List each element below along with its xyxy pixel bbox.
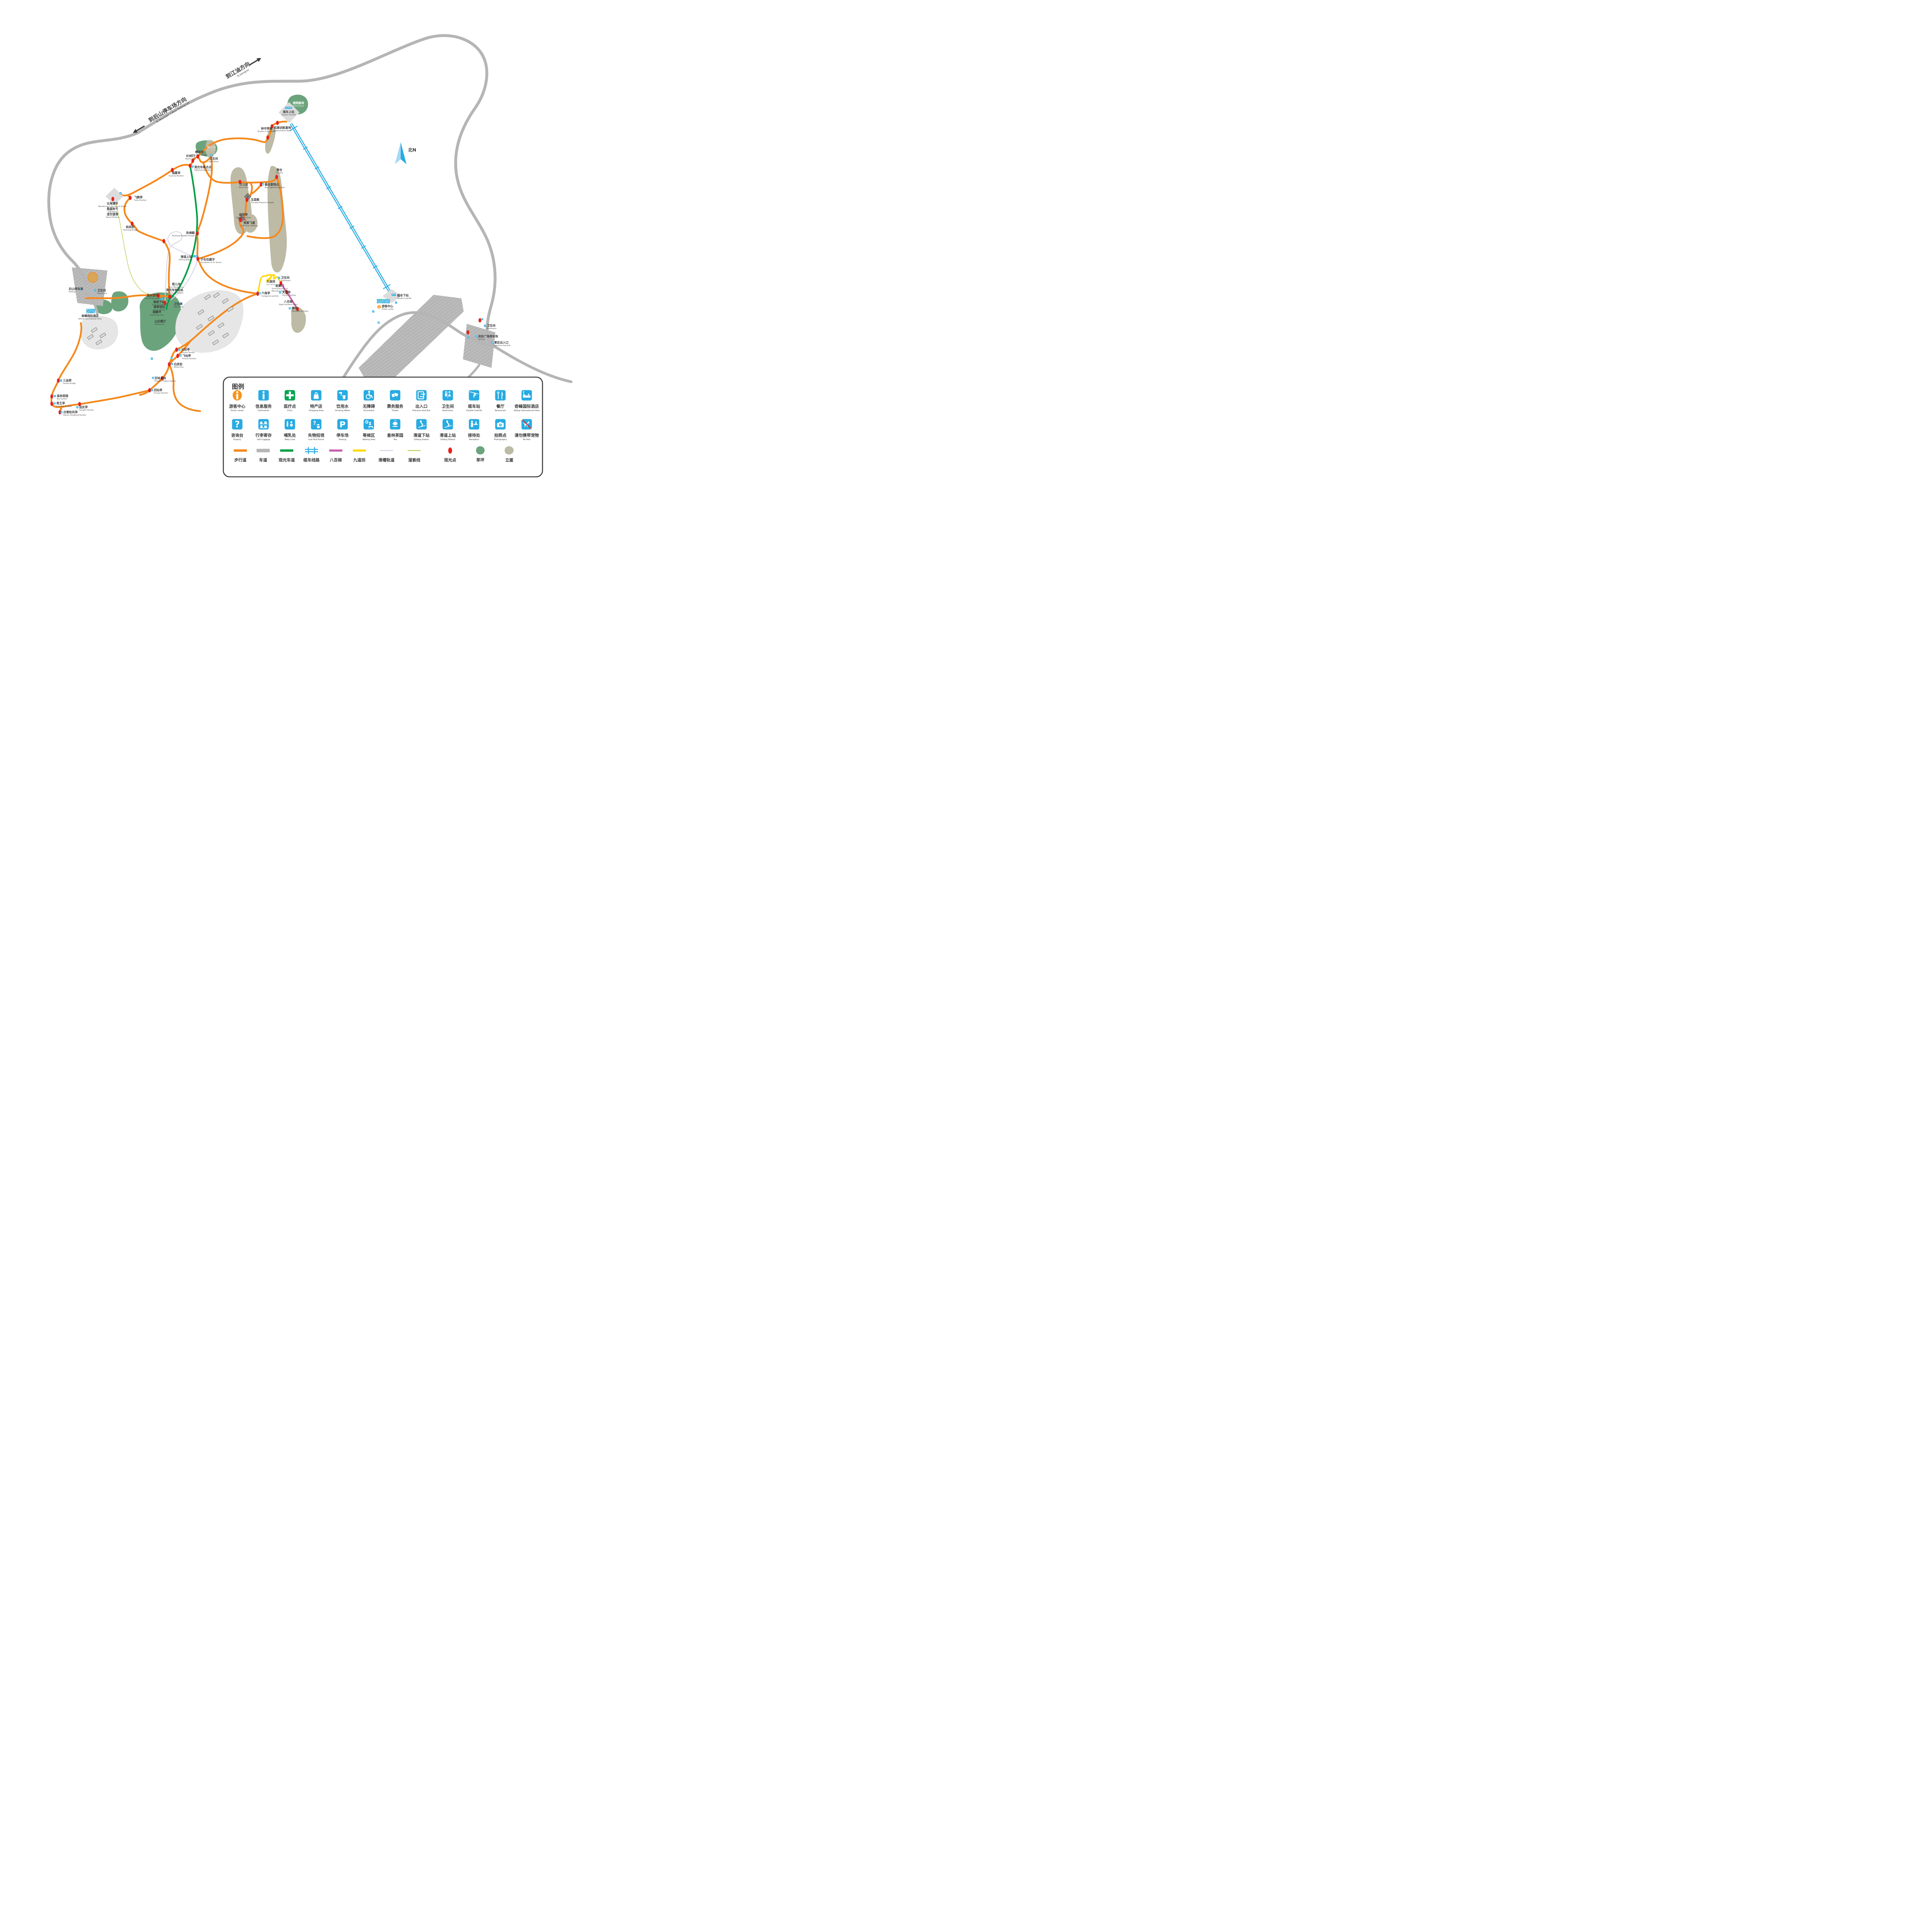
white-pine: 白皮松White Pine bbox=[174, 362, 184, 369]
parking-icon: P bbox=[86, 309, 88, 311]
back-mountain-parking-en: Parking bbox=[69, 291, 75, 293]
camera-icon bbox=[262, 183, 264, 185]
scenic-entrance-en: Entrance And Exit bbox=[494, 345, 510, 347]
back-mountain-parking-zh: 后山停车场 bbox=[69, 287, 83, 291]
scenic-spot-dot bbox=[50, 401, 53, 406]
north-label: 北N bbox=[408, 147, 416, 153]
tianyin-pavilion-en: Tianyin Pavilion bbox=[282, 294, 296, 297]
legend-en: Reception bbox=[469, 439, 479, 441]
gliding-station-upper-en: Gliding Station bbox=[179, 259, 192, 261]
walk-hotel-sanpin bbox=[58, 323, 81, 381]
speed-skating-en: Speed Skating bbox=[106, 216, 119, 219]
scenic-spot-dot bbox=[266, 135, 269, 139]
scenic-spot-dot bbox=[478, 318, 481, 322]
outward-bound-base-zh: 拓展训练基地 bbox=[274, 126, 291, 129]
guanwu-pavilion: 观雾亭Guanwu Pavilion bbox=[169, 171, 184, 177]
restaurant-icon bbox=[88, 311, 91, 313]
svg-text:?: ? bbox=[235, 420, 240, 430]
gliding-icon bbox=[416, 419, 427, 430]
forest-adventure: 森林探险Forest Adventure bbox=[145, 294, 160, 300]
restrooms-back-parking-zh: 卫生间 bbox=[97, 289, 106, 292]
to-back-parking-zh: 到后山停车场方向 bbox=[147, 96, 188, 124]
inscription-yu-youren-zh: 于右任题字 bbox=[201, 258, 215, 261]
junwang-pavilion: 君王亭Junwang Pavilion bbox=[56, 401, 72, 408]
scenic-spot-dot bbox=[57, 378, 60, 383]
junwang-pavilion-zh: 君王亭 bbox=[56, 401, 65, 405]
feihe-pavilion-en: Feihe Pavilion bbox=[134, 199, 146, 202]
yunyan-temple-en: Yunyan Temple bbox=[181, 352, 195, 354]
restrooms-temple: 卫生间Restrooms bbox=[174, 302, 184, 308]
white-pine-en: White Pine bbox=[174, 366, 184, 369]
enquiry-icon: ? bbox=[377, 301, 379, 304]
restrooms-nineturn: 卫生间Restrooms bbox=[281, 276, 291, 282]
sightseeing-start-station: 观光车始发站Sightseeing Station bbox=[166, 288, 184, 294]
guanwu-pavilion-en: Guanwu Pavilion bbox=[169, 175, 184, 177]
restrooms-icon bbox=[278, 277, 280, 279]
legend-line-label: 立崖 bbox=[505, 457, 514, 463]
songshi-pavilion-en: Songshi Pavilion bbox=[79, 409, 94, 412]
forest-adventure-en: Forest Adventure bbox=[145, 298, 160, 300]
legend-zh: 特产店 bbox=[310, 404, 323, 409]
map-canvas: PP??PP缆车上站Double Chairlift滑翔基地Gliding Ba… bbox=[0, 0, 606, 487]
heshang-bridge-en: Heshang Bridge bbox=[123, 229, 138, 231]
temple-complex bbox=[175, 291, 243, 352]
legend-en: Information bbox=[258, 410, 269, 412]
legend-zh: 拍照点 bbox=[494, 433, 507, 438]
chairlift-bottom-label: 缆车下站Double Chairlift bbox=[397, 294, 412, 300]
legend-en: Photography bbox=[494, 439, 507, 441]
daer-rock: 打儿岩Da'er Rock bbox=[239, 183, 249, 189]
shanlin-kou: 杉林口Shanlin Kou bbox=[185, 154, 196, 160]
best-sightseeing-spot-zh: 最佳景观点 bbox=[265, 183, 279, 186]
legend-zh: 票务服务 bbox=[387, 404, 403, 409]
gliding-icon bbox=[193, 255, 195, 257]
tianyin-pavilion-zh: 天音亭 bbox=[282, 291, 291, 294]
pavilion-icon bbox=[171, 363, 173, 365]
walk-yuyouren-hexagon bbox=[198, 259, 258, 294]
junwang-pavilion-en: Junwang Pavilion bbox=[56, 405, 72, 408]
info-icon bbox=[377, 299, 379, 301]
sanpin-bridge: 三品桥Sanpin Bridge bbox=[63, 379, 76, 385]
tickets-icon bbox=[119, 192, 122, 194]
scenic-spot-dot bbox=[245, 197, 248, 202]
nine-turning-en: Nine Turning bbox=[267, 284, 276, 286]
longzhu-parking-zh: 龙柱广场停车场 bbox=[478, 335, 498, 338]
rock-climbing-en: Rock Climbing bbox=[205, 150, 218, 152]
legend-en: Enquiry bbox=[233, 439, 241, 441]
svg-text:P: P bbox=[386, 301, 387, 303]
restrooms-right-zh: 卫生间 bbox=[487, 324, 495, 327]
nine-turning-zh: 九道拐 bbox=[266, 280, 276, 283]
visitor-icon bbox=[378, 305, 381, 309]
legend-en: Drinking Water bbox=[335, 410, 350, 412]
hotel-icon bbox=[86, 311, 88, 313]
legend-zh: 接待处 bbox=[468, 433, 480, 438]
scenic-spot-dot bbox=[176, 354, 179, 358]
tickets-icon bbox=[390, 390, 400, 401]
shopping-icon bbox=[311, 390, 321, 401]
huixian-pavilion-en: Huixian Pavilion bbox=[154, 392, 168, 395]
scenic-spot-dot bbox=[275, 175, 278, 179]
clinic-icon bbox=[285, 390, 295, 401]
restrooms-spring: 卫生间Restrooms bbox=[209, 157, 219, 163]
tickets-icon bbox=[388, 299, 390, 301]
legend-zh: 饮用水 bbox=[336, 404, 349, 409]
scenic-spot-dot bbox=[189, 163, 191, 168]
tianyin-pavilion: 天音亭Tianyin Pavilion bbox=[282, 291, 296, 297]
nopets-icon bbox=[522, 419, 532, 430]
legend-en: Qifeng International Hotel bbox=[514, 410, 539, 412]
legend-zh: 游客中心 bbox=[229, 404, 245, 409]
parking-icon: P bbox=[337, 419, 348, 430]
restrooms-icon bbox=[442, 390, 453, 401]
guanfeng-lawn-label-en: Guanfeng Lawn bbox=[150, 314, 164, 316]
gliding-station-upper: 滑道上站Gliding Station bbox=[179, 255, 192, 261]
guanfeng-lawn-label-zh: 观峰坪 bbox=[153, 310, 162, 314]
sightseeing-start-station-zh: 观光车始发站 bbox=[166, 288, 184, 292]
svg-text:P: P bbox=[339, 420, 345, 430]
front-entrance-fortress-zh: 前寨门 bbox=[276, 284, 284, 287]
villa-restaurant-en: Restaurant bbox=[155, 323, 165, 326]
camera-icon bbox=[170, 357, 173, 359]
inscription-yu-youren: 于右任题字Inscription of Yu Youren bbox=[201, 258, 222, 264]
svg-text:P: P bbox=[475, 335, 477, 338]
pavilion-icon bbox=[259, 292, 261, 294]
chairlift-icon bbox=[469, 390, 479, 401]
sightseeing-meeting-station-en: Sightseeing Station bbox=[194, 169, 212, 172]
legend-line-label: 车道 bbox=[259, 457, 267, 463]
scenic-spot-dot bbox=[162, 239, 165, 243]
scenic-entrance: 景区出入口Entrance And Exit bbox=[494, 341, 510, 347]
info-icon bbox=[259, 390, 269, 401]
white-pine-zh: 白皮松 bbox=[174, 362, 183, 366]
water-icon bbox=[337, 390, 348, 401]
legend-en: Tickets bbox=[391, 410, 399, 412]
scenic-spot-dot bbox=[148, 388, 151, 392]
svg-text:?: ? bbox=[313, 420, 316, 426]
walk-guanwu-station bbox=[172, 165, 190, 170]
inscription-yu-youren-en: Inscription of Yu Youren bbox=[201, 262, 222, 264]
songshi-pavilion-zh: 送史亭 bbox=[79, 405, 88, 409]
nine-turning: 九道拐Nine Turning bbox=[266, 280, 276, 286]
cliff-chain-walking-en: Cliff Chain Walking bbox=[241, 225, 258, 227]
shanlin-kou-en: Shanlin Kou bbox=[185, 158, 196, 160]
sea-of-clouds-zh: 云海漫步 bbox=[107, 202, 118, 205]
jade-emperor-temple-en: The Jade Emperor Temple bbox=[250, 202, 274, 204]
legend-en: Left Luggage bbox=[257, 439, 270, 441]
legend-en: Accessible bbox=[364, 410, 374, 412]
outward-bound-base: 拓展训练基地Outward-Bund Base bbox=[274, 126, 292, 132]
temple-icon bbox=[178, 349, 180, 351]
water-icon bbox=[383, 299, 385, 301]
tickets-icon bbox=[161, 298, 163, 300]
shanlin-kou-zh: 杉林口 bbox=[186, 154, 195, 158]
pavilion-icon bbox=[60, 411, 63, 413]
exit-icon bbox=[378, 321, 380, 324]
legend-en: No Pets bbox=[523, 439, 531, 441]
hexagonal-pavilion-en: hexagonal pavilion bbox=[262, 295, 279, 298]
legend-line-label: 缆车线路 bbox=[303, 457, 320, 463]
legend-en: Lost And Found bbox=[308, 439, 324, 441]
reception-icon bbox=[91, 309, 93, 311]
scenic-spot-dot bbox=[168, 294, 171, 299]
gliding-base-en: Gliding Base bbox=[293, 105, 304, 107]
luggage-icon bbox=[93, 311, 95, 313]
gliding-base-zh: 滑翔基地 bbox=[293, 101, 304, 105]
best-sightseeing-spot-en: Best Sightseeing Spot bbox=[265, 187, 285, 189]
visitor-center-label-zh: 游客中心 bbox=[382, 304, 393, 308]
lostfound-icon: ? bbox=[311, 419, 321, 430]
legend-line-label: 观光点 bbox=[444, 457, 456, 463]
scenic-spot-dot bbox=[196, 257, 199, 261]
enquiry-icon: ? bbox=[232, 419, 243, 430]
sanpin-bridge-zh: 三品桥 bbox=[63, 379, 72, 382]
feihe-pavilion-zh: 飞鹤亭 bbox=[134, 196, 143, 199]
parking-icon: P bbox=[386, 301, 388, 303]
chairlift-bottom-label-zh: 缆车下站 bbox=[397, 294, 409, 297]
legend-zh: 无障碍 bbox=[362, 404, 375, 409]
visitor-icon bbox=[233, 390, 242, 401]
pavilion-icon bbox=[76, 406, 78, 408]
tan-feature-circle bbox=[88, 272, 98, 282]
legend-zh: 缆车站 bbox=[468, 404, 480, 409]
eight-hundred-stairs-zh: 八百梯 bbox=[284, 300, 293, 303]
tea-garden-zh: 皇林茶园 bbox=[57, 394, 68, 398]
legend-zh: 皇林茶园 bbox=[387, 433, 403, 438]
lostfound-icon: ? bbox=[383, 301, 385, 303]
north-compass: 北N bbox=[395, 142, 416, 164]
qifeng-hotel-en: Qifeng International Hotel bbox=[78, 318, 102, 320]
villa-restaurant-zh: 山庄餐厅 bbox=[155, 320, 166, 323]
qifeng-hotel: 奇峰国际酒店Qifeng International Hotel bbox=[78, 314, 102, 320]
chuntai: 春台Chuntai bbox=[276, 168, 283, 174]
legend-title: 图例 bbox=[232, 383, 244, 390]
restrooms-icon bbox=[395, 301, 397, 304]
grass-skiing-zh: 滑草项目 bbox=[153, 305, 165, 309]
jade-emperor-temple-zh: 玉皇殿 bbox=[251, 198, 260, 201]
sanpin-bridge-en: Sanpin Bridge bbox=[63, 383, 76, 385]
reclining-buddha-temple-en: Reclining Buddha Temple bbox=[172, 235, 195, 237]
legend: 图例游客中心Visitor center信息服务Information医疗点Cl… bbox=[223, 377, 543, 477]
to-jiangyou: 到江油方向To Jiangyou bbox=[224, 61, 253, 83]
legend-zh: 行李寄存 bbox=[255, 433, 272, 438]
baixue-songfeng-pavilion-en: Baixue Songfeng Pavilion bbox=[63, 414, 86, 417]
info-icon bbox=[93, 309, 95, 311]
scenic-spot-dot bbox=[276, 121, 279, 125]
legend-zh: 卫生间 bbox=[442, 404, 454, 409]
hotel-lawn-2 bbox=[111, 291, 129, 311]
legend-en: Gliding Station bbox=[440, 439, 455, 441]
feixian-pavilion-zh: 飞仙亭 bbox=[182, 354, 191, 357]
eight-hundred-stairs: 八百梯Eight Hundred Stairs bbox=[279, 300, 298, 306]
restaurant-icon bbox=[495, 390, 506, 401]
camera-icon bbox=[495, 419, 506, 430]
legend-line-label: 九道拐 bbox=[353, 457, 366, 463]
walk-whitepine-south bbox=[169, 364, 200, 411]
restrooms-icon bbox=[88, 309, 91, 311]
archway-icon bbox=[289, 307, 291, 310]
legend-zh: 出入口 bbox=[415, 404, 428, 409]
songshi-pavilion: 送史亭Songshi Pavilion bbox=[79, 405, 94, 412]
walk-guanwu-clouds bbox=[121, 170, 172, 196]
legend-en: Shopping Area bbox=[309, 410, 323, 412]
legend-zh: 哺乳处 bbox=[284, 433, 296, 438]
hotel-grounds bbox=[81, 316, 118, 349]
legend-en: Double Chairlift bbox=[466, 410, 482, 412]
legend-zh: 信息服务 bbox=[255, 404, 272, 409]
feihe-pavilion: 飞鹤亭Feihe Pavilion bbox=[134, 196, 146, 202]
shuttle-in-forest-zh: 林中穿梭 bbox=[261, 127, 272, 130]
daer-rock-en: Da'er Rock bbox=[239, 187, 249, 189]
feixian-pavilion-en: Feixian Pavilion bbox=[182, 358, 196, 360]
legend-line-label: 步行道 bbox=[234, 457, 247, 463]
tickets-icon bbox=[468, 337, 469, 338]
scenic-spot-dot bbox=[168, 362, 170, 366]
restrooms-icon bbox=[151, 357, 153, 360]
speed-skating: 凌空速滑Speed Skating bbox=[106, 213, 119, 219]
pavilion-icon bbox=[179, 354, 182, 357]
scenic-spot-dot bbox=[196, 231, 199, 235]
babycare-icon bbox=[381, 301, 383, 303]
visitor-center-parking-lot-hatch bbox=[359, 295, 464, 381]
to-back-parking: 到后山停车场方向To Mountain' s Back Parking Lot bbox=[147, 95, 190, 126]
memorial-archway-zh: 牌坊 bbox=[292, 306, 298, 310]
scenic-spot-dot bbox=[111, 197, 114, 201]
chairlift-top-label: 缆车上站Double Chairlift bbox=[282, 110, 296, 116]
legend-zh: 奇峰国际酒店 bbox=[515, 404, 539, 409]
heshang-bridge-zh: 和尚桥 bbox=[126, 225, 135, 229]
longzhu-parking-en: Parking bbox=[478, 338, 485, 341]
legend-line-label: 溜索线 bbox=[408, 457, 420, 463]
legend-en: Entrance And Exit bbox=[412, 410, 430, 412]
waiting-icon bbox=[388, 301, 390, 303]
scenic-spot-dot bbox=[50, 394, 53, 398]
qifeng-hotel-zh: 奇峰国际酒店 bbox=[82, 314, 99, 318]
huixian-pavilion: 回仙亭Huixian Pavilion bbox=[154, 388, 168, 395]
waiting-icon bbox=[364, 419, 374, 430]
restrooms-back-parking: 卫生间Restrooms bbox=[97, 289, 107, 295]
hexagonal-pavilion-zh: 六角亭 bbox=[262, 291, 270, 295]
legend-zh: 停车场 bbox=[337, 433, 349, 438]
memorial-archway-en: Memorial archway bbox=[292, 310, 308, 313]
tea-icon bbox=[54, 395, 56, 397]
map-svg: PP??PP缆车上站Double Chairlift滑翔基地Gliding Ba… bbox=[0, 0, 606, 487]
scenic-spot-dot bbox=[175, 347, 178, 352]
restrooms-nineturn-zh: 卫生间 bbox=[281, 276, 289, 279]
visitor-center-label: 游客中心Visitor center bbox=[382, 304, 394, 311]
emperor-statue-gallery-zh: 百味皇林 bbox=[155, 376, 166, 380]
legend-zh: 餐厅 bbox=[496, 404, 505, 409]
villa-restaurant: 山庄餐厅Restaurant bbox=[155, 320, 166, 326]
chairlift-icon bbox=[285, 107, 287, 109]
chairlift-bottom-label-en: Double Chairlift bbox=[397, 298, 412, 300]
restrooms-right: 卫生间Restrooms bbox=[487, 324, 497, 330]
luggage-icon bbox=[379, 301, 381, 303]
legend-zh: 医疗点 bbox=[284, 404, 296, 409]
legend-zh: 失物招领 bbox=[308, 433, 324, 438]
legend-zh: 咨询台 bbox=[231, 433, 243, 438]
tickets-icon bbox=[391, 294, 394, 296]
pavilion-icon bbox=[53, 402, 56, 405]
legend-en: Restaurant bbox=[495, 410, 506, 412]
svg-text:?: ? bbox=[378, 301, 379, 304]
yunyan-temple-zh: 云岩寺 bbox=[181, 348, 190, 351]
legend-en: Visitor center bbox=[231, 410, 245, 412]
restrooms-temple-zh: 卫生间 bbox=[174, 302, 182, 306]
legend-zh: 滑道上站 bbox=[440, 433, 456, 438]
restrooms-nineturn-en: Restrooms bbox=[281, 280, 291, 282]
scenic-spot-dot bbox=[466, 330, 469, 334]
chairlift-top-label-zh: 缆车上站 bbox=[283, 110, 294, 114]
hotel-icon bbox=[522, 390, 532, 401]
chuntai-zh: 春台 bbox=[276, 168, 282, 172]
baixue-songfeng-pavilion-zh: 白雪松风亭 bbox=[63, 410, 78, 414]
daer-rock-zh: 打儿岩 bbox=[240, 183, 248, 186]
legend-line-label: 八百梯 bbox=[329, 457, 342, 463]
chairlift-top-label-en: Double Chairlift bbox=[282, 114, 296, 116]
boundary-road-left bbox=[49, 214, 86, 284]
legend-line-label: 草坪 bbox=[476, 457, 485, 463]
restrooms-icon bbox=[372, 310, 374, 313]
chaoran-pavilion-en: Chaoran Pavilion bbox=[236, 217, 251, 219]
chuntai-en: Chuntai bbox=[276, 172, 283, 174]
legend-en: Clinic bbox=[287, 410, 293, 412]
tea-garden: 皇林茶园Tea Garden bbox=[56, 394, 68, 400]
exit-icon bbox=[416, 390, 427, 401]
legend-en: Tea bbox=[393, 439, 397, 441]
taer-mausoleum-zh: 塔儿坟 bbox=[172, 282, 181, 286]
cliff-chain-walking-zh: 铁索飞渡 bbox=[243, 221, 255, 224]
accessible-icon bbox=[364, 390, 374, 401]
cliff-swing-zh: 悬崖秋千 bbox=[106, 207, 118, 211]
tea-garden-en: Tea Garden bbox=[56, 398, 67, 400]
sightseeing-start-station-en: Sightseeing Station bbox=[166, 292, 184, 294]
restrooms-temple-en: Restrooms bbox=[174, 306, 184, 308]
yingming-pavilion-zh: 嘤明亭 bbox=[195, 150, 204, 154]
restrooms-icon bbox=[484, 325, 486, 327]
tickets-icon bbox=[191, 165, 194, 168]
rock-climbing-zh: 攀岩场 bbox=[207, 146, 216, 149]
restrooms-back-parking-en: Restrooms bbox=[97, 293, 107, 295]
legend-en: Restrooms bbox=[442, 410, 453, 412]
reclining-buddha-temple-zh: 卧佛殿 bbox=[186, 231, 195, 235]
accessible-icon bbox=[386, 299, 388, 301]
front-entrance-fortress-en: Front Entrance of bbox=[272, 288, 288, 290]
sightseeing-meeting-station-zh: 观光车集合点 bbox=[194, 165, 212, 169]
legend-en: Parking bbox=[339, 439, 346, 441]
speed-skating-zh: 凌空速滑 bbox=[107, 213, 118, 216]
forest-adventure-zh: 森林探险 bbox=[147, 294, 158, 297]
bridge-icon bbox=[60, 379, 62, 382]
to-jiangyou-arrow bbox=[248, 56, 262, 66]
eight-hundred-stairs-en: Eight Hundred Stairs bbox=[279, 304, 298, 306]
scenic-area-map: PP??PP缆车上站Double Chairlift滑翔基地Gliding Ba… bbox=[0, 0, 606, 487]
archway-icon bbox=[152, 377, 154, 379]
outward-bound-base-en: Outward-Bund Base bbox=[274, 130, 292, 132]
gliding-station-lower-zh: 滑道下站 bbox=[153, 300, 165, 304]
clinic-icon bbox=[379, 299, 381, 301]
pavilion-icon bbox=[151, 389, 153, 391]
babycare-icon bbox=[285, 419, 295, 430]
parking-icon: P bbox=[475, 335, 477, 338]
cable-car-line bbox=[290, 123, 391, 292]
tea-icon bbox=[390, 419, 400, 430]
legend-en: Gliding Station bbox=[414, 439, 429, 441]
feixian-pavilion: 飞仙亭Feixian Pavilion bbox=[182, 354, 196, 360]
guanwu-pavilion-zh: 观雾亭 bbox=[172, 171, 181, 175]
tickets-icon bbox=[195, 255, 197, 257]
legend-line-label: 滑槽轨道 bbox=[378, 457, 395, 463]
